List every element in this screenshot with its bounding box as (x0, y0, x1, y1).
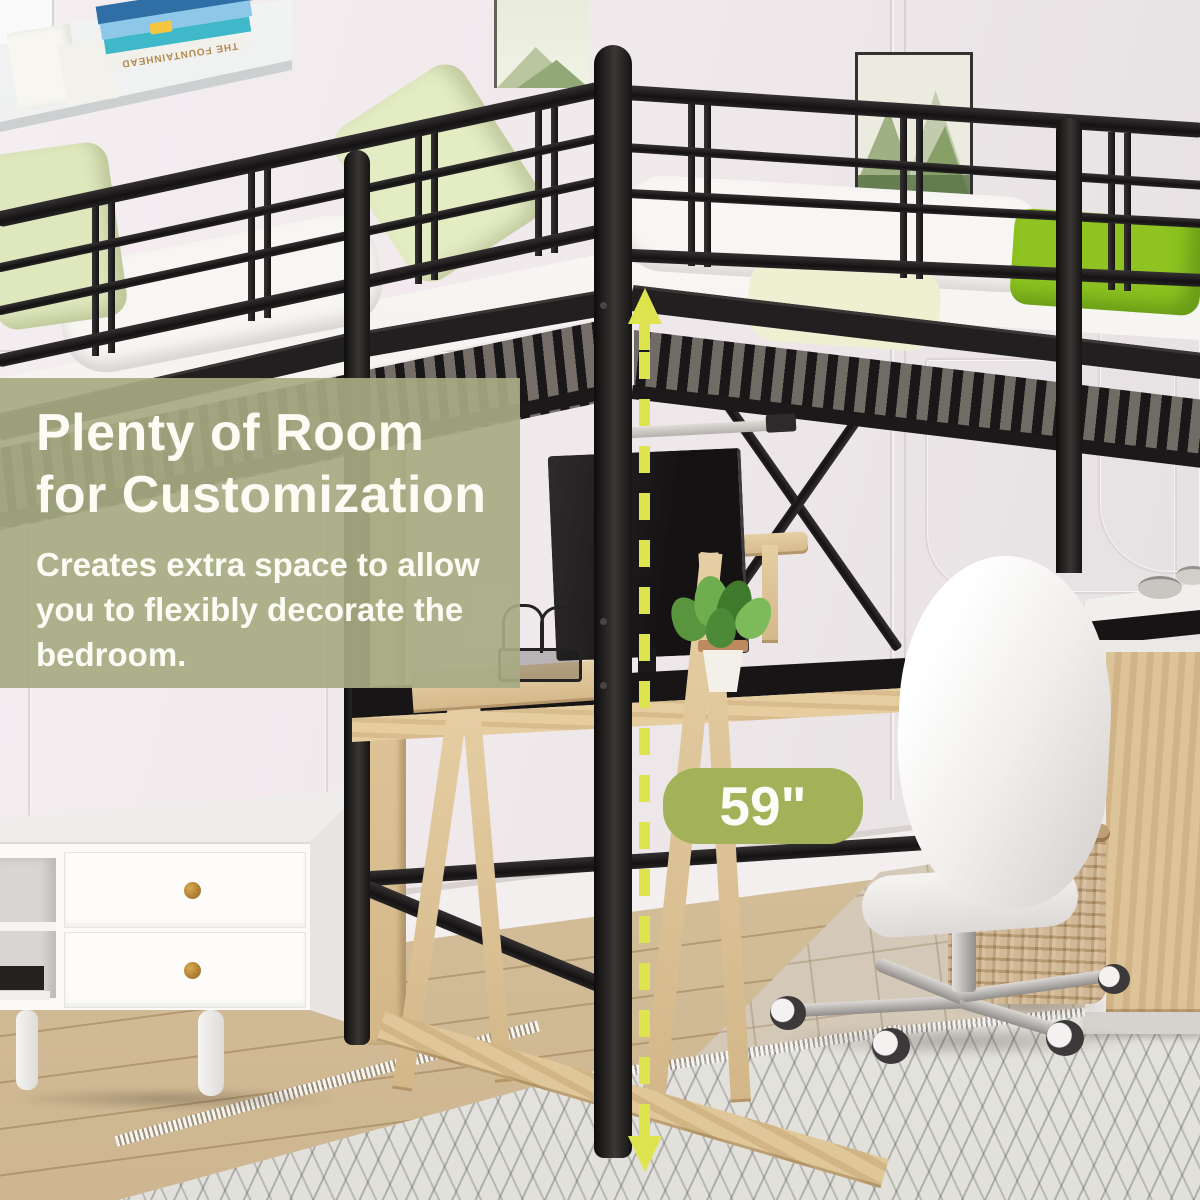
rail-spindle (1108, 132, 1115, 290)
cubby-tray (0, 966, 44, 990)
rail-spindle (1124, 133, 1131, 291)
cubby-book (0, 991, 50, 1000)
loft-bed-product-photo: THE FOUNTAINHEAD (0, 0, 1200, 1200)
caster-wheel (872, 1028, 910, 1064)
tv-stand-shadow (4, 1088, 344, 1110)
gas-lift (952, 926, 976, 992)
rail-spindle (704, 105, 711, 267)
wall-art-small (494, 0, 589, 88)
caster-wheel (770, 996, 806, 1030)
counter-jar (1138, 576, 1182, 599)
arrow-head-down-icon (628, 1136, 662, 1172)
dimension-label: 59" (719, 775, 806, 837)
panel-body-line3: bedroom. (36, 632, 516, 677)
office-chair-shadow (780, 1024, 1140, 1058)
post-screw (600, 682, 607, 689)
panel-body-line2: you to flexibly decorate the (36, 587, 516, 632)
wall-art-framed (855, 52, 973, 200)
arrow-stem-top (639, 318, 650, 350)
cubby-shelf (0, 922, 56, 931)
bed-post-front (594, 45, 632, 1158)
dimension-pill: 59" (663, 768, 863, 844)
bed-post-rear-right (1056, 118, 1082, 573)
panel-body: Creates extra space to allow you to flex… (36, 542, 516, 677)
arrow-stem-bottom (639, 1104, 650, 1138)
rail-spindle (900, 118, 907, 278)
caster-wheel (1046, 1020, 1084, 1056)
post-screw (600, 618, 607, 625)
rail-spindle (535, 110, 542, 256)
tv-stand-leg (16, 1010, 38, 1090)
tv-stand-leg (198, 1010, 224, 1096)
arrow-dashed-line (639, 352, 650, 1108)
monitor-light-bar-head (766, 413, 797, 433)
caster-wheel (1098, 964, 1130, 994)
panel-body-line1: Creates extra space to allow (36, 542, 516, 587)
drawer-knob (184, 882, 201, 899)
side-cabinet-panel (1106, 652, 1200, 1012)
rail-spindle (916, 119, 923, 279)
wire-tray-arc (540, 606, 582, 653)
rail-spindle (551, 107, 558, 253)
rail-spindle (688, 104, 695, 266)
panel-heading: Plenty of Room for Customization (36, 402, 516, 526)
rail-spindle (431, 132, 438, 280)
post-screw (600, 302, 607, 309)
drawer-knob (184, 962, 201, 979)
panel-heading-line2: for Customization (36, 464, 516, 526)
panel-heading-line1: Plenty of Room (36, 402, 516, 464)
